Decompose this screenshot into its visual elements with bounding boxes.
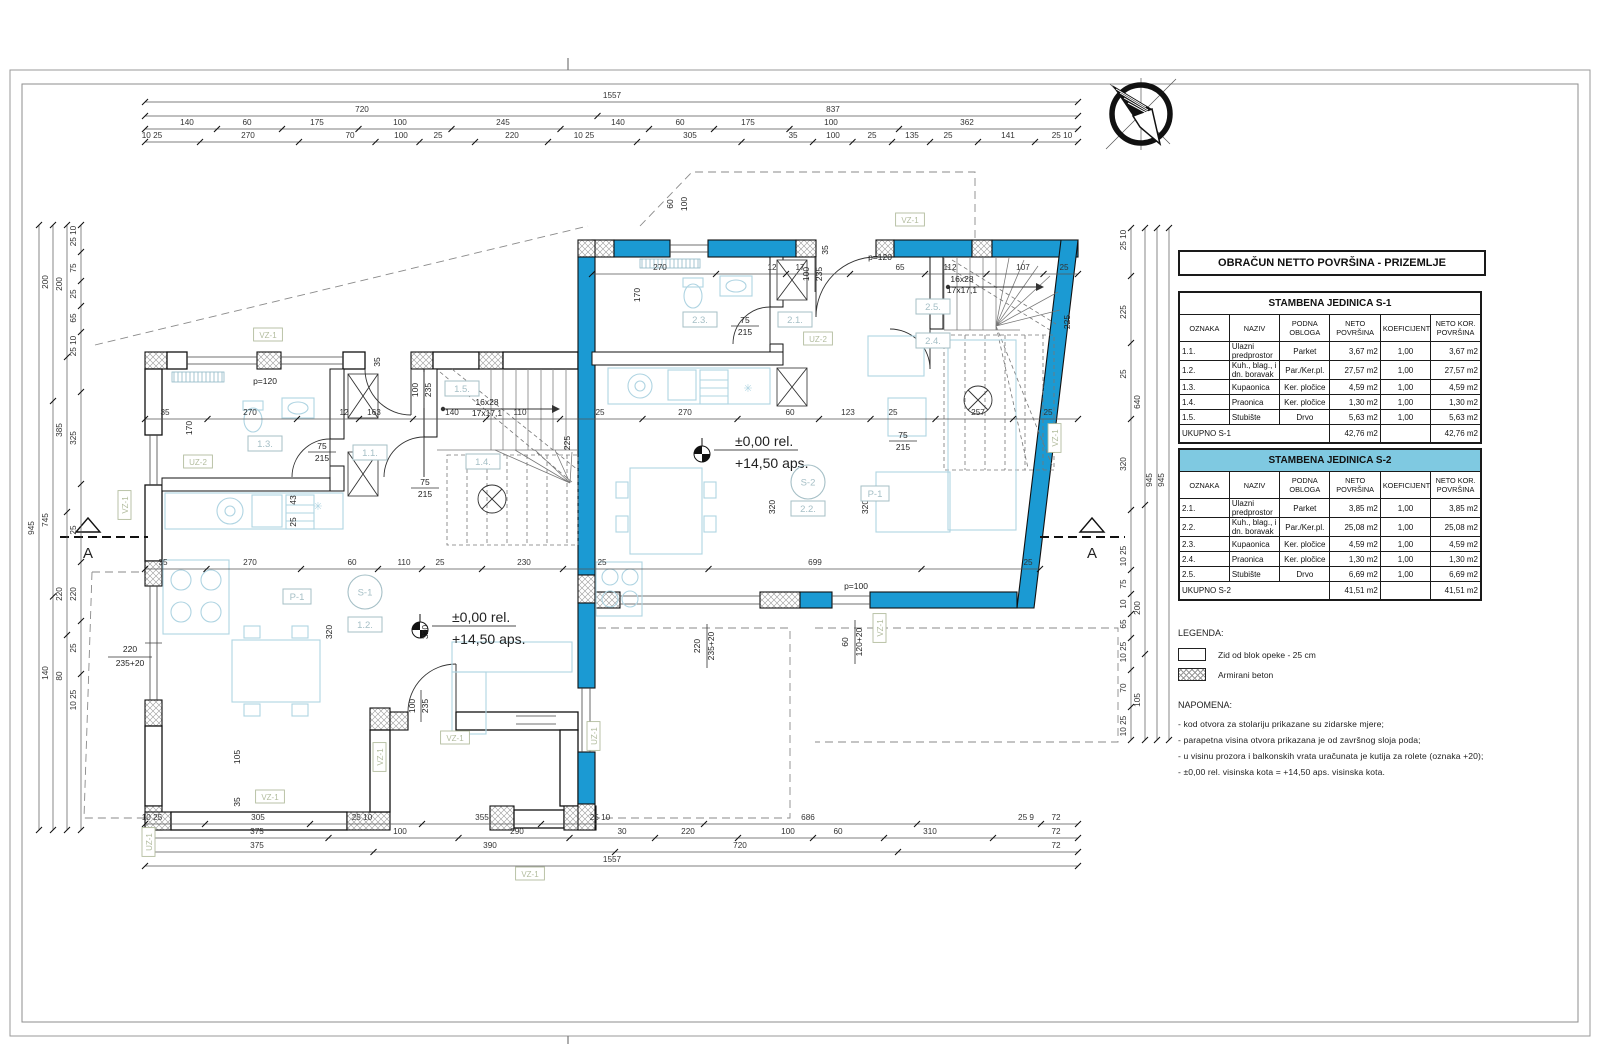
dim-label: 25 10: [69, 225, 78, 246]
room-label: P-1: [283, 589, 311, 604]
svg-text:1.5.: 1.5.: [454, 384, 470, 395]
dim-label: 270: [243, 558, 257, 567]
plan-text: 220: [692, 639, 702, 653]
dim-label: 25: [943, 131, 953, 140]
dim-label: 72: [1051, 813, 1061, 822]
dim-label: 220: [681, 827, 695, 836]
dim-label: 72: [1051, 841, 1061, 850]
room-label: 1.3.: [248, 436, 282, 451]
table-row: 1.4.PraonicaKer. pločice1,30 m21,001,30 …: [1179, 395, 1481, 410]
table-cell: 1,00: [1380, 342, 1430, 361]
dim-label: 305: [251, 813, 265, 822]
table-cell: 1.1.: [1179, 342, 1229, 361]
plan-text: 75: [898, 430, 908, 440]
table-cell: 1.5.: [1179, 410, 1229, 425]
svg-text:1.2.: 1.2.: [357, 620, 373, 631]
dim-label: 30: [617, 827, 627, 836]
column-header: NETO KOR. POVRŠINA: [1431, 315, 1481, 342]
table-cell: Parket: [1280, 499, 1330, 518]
dim-label: 10 25: [1119, 545, 1128, 566]
table-title: STAMBENA JEDINICA S-2: [1179, 449, 1481, 472]
table-cell: 2.2.: [1179, 518, 1229, 537]
dim-label: 25: [433, 131, 443, 140]
table-cell: 2.1.: [1179, 499, 1229, 518]
dim-label: 686: [801, 813, 815, 822]
legend-item-label: Armirani beton: [1218, 670, 1273, 680]
table-cell: Stubište: [1229, 567, 1279, 582]
table-cell: 2.4.: [1179, 552, 1229, 567]
dim-label: 10 25: [1119, 715, 1128, 736]
table-cell: 2.3.: [1179, 537, 1229, 552]
dim-label: 175: [310, 118, 324, 127]
dim-label: 140: [180, 118, 194, 127]
dim-label: 35: [158, 558, 168, 567]
notes: NAPOMENA: - kod otvora za stolariju prik…: [1178, 700, 1500, 783]
dim-label: 10 25: [142, 813, 163, 822]
plan-text: 100: [410, 383, 420, 397]
svg-text:S-1: S-1: [358, 588, 373, 599]
dim-label: 305: [683, 131, 697, 140]
dim-label: 135: [905, 131, 919, 140]
plan-text: 17x17,1: [947, 285, 978, 295]
table-row: 2.5.StubišteDrvo6,69 m21,006,69 m2: [1179, 567, 1481, 582]
svg-text:1.4.: 1.4.: [475, 457, 491, 468]
dim-label: 25: [867, 131, 877, 140]
dim-label: 325: [69, 431, 78, 445]
table-cell: Drvo: [1280, 567, 1330, 582]
table-cell: 1.4.: [1179, 395, 1229, 410]
note-line: - u visinu prozora i balkonskih vrata ur…: [1178, 751, 1500, 761]
plan-text: ±0,00 rel.: [735, 433, 793, 449]
svg-text:VZ-1: VZ-1: [376, 748, 385, 766]
column-header: NETO POVRŠINA: [1330, 472, 1380, 499]
table-cell: 3,67 m2: [1431, 342, 1481, 361]
room-label: 1.4.: [466, 454, 500, 469]
table-cell: 42,76 m2: [1431, 425, 1481, 443]
plan-text: 16x28: [475, 397, 498, 407]
column-header: PODNA OBLOGA: [1280, 472, 1330, 499]
dim-label: 140: [41, 666, 50, 680]
table-cell: Kuh., blag., i dn. boravak: [1229, 518, 1279, 537]
plan-text: A: [1087, 545, 1097, 562]
table-cell: 6,69 m2: [1431, 567, 1481, 582]
svg-text:VZ-1: VZ-1: [876, 619, 885, 637]
dim-label: 270: [678, 408, 692, 417]
svg-text:VZ-1: VZ-1: [446, 734, 464, 743]
dim-label: 25: [69, 289, 78, 299]
table-cell: 25,08 m2: [1431, 518, 1481, 537]
table-cell: 4,59 m2: [1431, 380, 1481, 395]
table-row: 2.1.Ulazni predprostorParket3,85 m21,003…: [1179, 499, 1481, 518]
dim-label: 60: [833, 827, 843, 836]
room-label: 2.2.: [791, 501, 825, 516]
plan-text: 170: [632, 288, 642, 302]
dim-label: 270: [241, 131, 255, 140]
plan-text: +14,50 aps.: [452, 631, 526, 647]
plan-text: p=120: [868, 252, 892, 262]
table-cell: Ulazni predprostor: [1229, 499, 1279, 518]
tag-label: VZ-1: [873, 614, 886, 643]
plan-text: 215: [315, 453, 329, 463]
dim-label: 257: [971, 408, 985, 417]
table-cell: 41,51 m2: [1431, 582, 1481, 600]
unit-label: S-1: [348, 575, 382, 609]
dim-label: 100: [824, 118, 838, 127]
table-cell: Ker. pločice: [1280, 395, 1330, 410]
plan-text: 43: [288, 495, 298, 505]
table-cell: 3,85 m2: [1431, 499, 1481, 518]
dim-label: 80: [55, 671, 64, 681]
svg-text:VZ-1: VZ-1: [261, 793, 279, 802]
dim-label: 10 25: [574, 131, 595, 140]
room-label: 1.5.: [445, 381, 479, 396]
plan-text: 75: [317, 441, 327, 451]
table-cell: 1,00: [1380, 410, 1430, 425]
plan-text: 235+20: [706, 631, 716, 660]
room-label: 2.4.: [916, 333, 950, 348]
table-cell: Ulazni predprostor: [1229, 342, 1279, 361]
dim-label: 65: [895, 263, 905, 272]
plan-text: 320: [420, 625, 430, 639]
plan-text: 35: [232, 797, 242, 807]
dim-label: 65: [69, 313, 78, 323]
plan-text: ✳: [743, 383, 752, 395]
dim-label: 10 25: [1119, 641, 1128, 662]
plan-text: 75: [420, 477, 430, 487]
dim-label: 270: [653, 263, 667, 272]
plan-text: 170: [184, 421, 194, 435]
dim-label: 290: [510, 827, 524, 836]
dim-label: 25: [69, 525, 78, 535]
plan-text: ±0,00 rel.: [452, 609, 510, 625]
svg-text:VZ-1: VZ-1: [901, 216, 919, 225]
dim-label: 163: [367, 408, 381, 417]
dim-label: 220: [55, 587, 64, 601]
svg-text:UZ-1: UZ-1: [590, 727, 599, 745]
plan-text: 235: [814, 267, 824, 281]
table-cell: 25,08 m2: [1330, 518, 1380, 537]
plan-text: 320: [324, 625, 334, 639]
dim-label: 25 10: [1119, 229, 1128, 250]
column-header: OZNAKA: [1179, 315, 1229, 342]
note-line: - ±0,00 rel. visinska kota = +14,50 aps.…: [1178, 767, 1500, 777]
table-row: 2.4.PraonicaKer. pločice1,30 m21,001,30 …: [1179, 552, 1481, 567]
table-cell: Ker. pločice: [1280, 537, 1330, 552]
svg-text:VZ-1: VZ-1: [259, 331, 277, 340]
plan-text: 225: [562, 436, 572, 450]
plan-text: 320: [860, 500, 870, 514]
tag-label: VZ-1: [441, 731, 470, 744]
dim-label: 25: [597, 558, 607, 567]
dim-label: 1557: [603, 91, 622, 100]
notes-title: NAPOMENA:: [1178, 700, 1500, 710]
tag-label: VZ-1: [373, 743, 386, 772]
s2-walls: [578, 240, 1078, 830]
dim-label: 60: [785, 408, 795, 417]
dim-label: 100: [826, 131, 840, 140]
table-cell: Stubište: [1229, 410, 1279, 425]
svg-text:VZ-1: VZ-1: [121, 496, 130, 514]
door-swings: [292, 257, 930, 712]
dim-label: 140: [445, 408, 459, 417]
dim-label: 100: [781, 827, 795, 836]
dim-label: 720: [733, 841, 747, 850]
table-cell: 1,30 m2: [1330, 552, 1380, 567]
table-cell: 4,59 m2: [1330, 380, 1380, 395]
plan-text: p=100: [844, 581, 868, 591]
table-cell: 1,00: [1380, 395, 1430, 410]
table-cell: 5,63 m2: [1431, 410, 1481, 425]
dim-label: 72: [1051, 827, 1061, 836]
table-cell: 41,51 m2: [1330, 582, 1380, 600]
dim-label: 375: [250, 827, 264, 836]
room-label: 2.3.: [683, 312, 717, 327]
svg-text:2.5.: 2.5.: [925, 302, 941, 313]
room-label: P-1: [861, 486, 889, 501]
dim-label: 745: [41, 513, 50, 527]
svg-text:1.1.: 1.1.: [362, 448, 378, 459]
dim-label: 25: [1119, 369, 1128, 379]
dim-label: 112: [943, 263, 956, 272]
svg-text:2.4.: 2.4.: [925, 336, 941, 347]
dim-label: 25: [69, 643, 78, 653]
table-cell: Kuh., blag., i dn. boravak: [1229, 361, 1279, 380]
dim-label: 220: [505, 131, 519, 140]
legend-item-label: Zid od blok opeke - 25 cm: [1218, 650, 1316, 660]
dim-label: 390: [483, 841, 497, 850]
tag-label: UZ-1: [587, 722, 600, 751]
table-cell: Par./Ker.pl.: [1280, 361, 1330, 380]
svg-text:VZ-1: VZ-1: [1051, 429, 1060, 447]
column-header: OZNAKA: [1179, 472, 1229, 499]
dim-label: 100: [394, 131, 408, 140]
table-row: 2.3.KupaonicaKer. pločice4,59 m21,004,59…: [1179, 537, 1481, 552]
dim-label: 375: [250, 841, 264, 850]
dim-label: 945: [1145, 473, 1154, 487]
dim-label: 837: [826, 105, 840, 114]
dim-label: 12: [767, 263, 777, 272]
plan-text: 75: [740, 315, 750, 325]
plan-text: 235: [420, 699, 430, 713]
table-cell: Kupaonica: [1229, 537, 1279, 552]
column-header: KOEFICIJENT: [1380, 472, 1430, 499]
dim-label: 200: [41, 275, 50, 289]
radiator-s1: [172, 372, 224, 382]
table-cell: Parket: [1280, 342, 1330, 361]
dim-label: 945: [27, 521, 36, 535]
table-cell: Par./Ker.pl.: [1280, 518, 1330, 537]
note-line: - kod otvora za stolariju prikazane su z…: [1178, 719, 1500, 729]
plan-text: 225: [1062, 315, 1072, 329]
radiator-s2: [640, 259, 700, 268]
plan-text: 60: [665, 199, 675, 209]
tag-label: UZ-1: [142, 828, 155, 857]
table-cell: 5,63 m2: [1330, 410, 1380, 425]
dim-label: 25 10: [1052, 131, 1073, 140]
drawing-sheet: 1557720837140601751002451406017510036210…: [0, 0, 1600, 1044]
concrete-swatch: [1178, 668, 1206, 681]
dim-label: 25: [435, 558, 445, 567]
svg-text:UZ-2: UZ-2: [809, 335, 827, 344]
table-cell: 1,30 m2: [1431, 552, 1481, 567]
table-cell: 27,57 m2: [1431, 361, 1481, 380]
plan-text: 235: [423, 383, 433, 397]
legend-item: Zid od blok opeke - 25 cm: [1178, 648, 1482, 661]
column-header: KOEFICIJENT: [1380, 315, 1430, 342]
dim-label: 70: [1119, 683, 1128, 693]
table-row: 2.2.Kuh., blag., i dn. boravakPar./Ker.p…: [1179, 518, 1481, 537]
tag-label: VZ-1: [516, 867, 545, 880]
table-title: STAMBENA JEDINICA S-1: [1179, 292, 1481, 315]
tag-label: UZ-2: [804, 332, 833, 345]
legend-item: Armirani beton: [1178, 668, 1482, 681]
svg-text:2.3.: 2.3.: [692, 315, 708, 326]
plan-text: 120+20: [854, 627, 864, 656]
tag-label: UZ-2: [184, 455, 213, 468]
table-cell: 1,00: [1380, 499, 1430, 518]
dim-label: 12: [339, 408, 349, 417]
dim-label: 699: [808, 558, 822, 567]
dim-label: 385: [55, 423, 64, 437]
brick-wall-swatch: [1178, 648, 1206, 661]
table-cell: 27,57 m2: [1330, 361, 1380, 380]
plan-text: 35: [372, 357, 382, 367]
dim-label: 945: [1157, 473, 1166, 487]
dim-label: 60: [675, 118, 685, 127]
room-label: 2.5.: [916, 299, 950, 314]
column-header: NETO POVRŠINA: [1330, 315, 1380, 342]
plan-text: 215: [738, 327, 752, 337]
terrace-outlines: [84, 172, 1118, 818]
dim-label: 230: [517, 558, 531, 567]
table-cell: 1,30 m2: [1431, 395, 1481, 410]
table-cell: UKUPNO S-1: [1179, 425, 1330, 443]
plan-text: 35: [820, 245, 830, 255]
dim-label: 25: [888, 408, 898, 417]
north-arrow-icon: [1106, 78, 1176, 150]
dim-label: 25: [1023, 558, 1033, 567]
table-cell: 1.2.: [1179, 361, 1229, 380]
plan-text: 105: [232, 750, 242, 764]
dim-label: 640: [1133, 395, 1142, 409]
table-row: 1.5.StubišteDrvo5,63 m21,005,63 m2: [1179, 410, 1481, 425]
dim-label: 141: [1001, 131, 1015, 140]
section-marker-right: [1040, 518, 1125, 537]
dim-label: 270: [243, 408, 257, 417]
dim-label: 355: [475, 813, 489, 822]
plan-text: 235+20: [116, 658, 145, 668]
dim-label: 10: [1119, 599, 1128, 609]
dim-label: 200: [1133, 601, 1142, 615]
dim-label: 105: [1133, 693, 1142, 707]
dim-label: 107: [1016, 263, 1030, 272]
tag-label: VZ-1: [256, 790, 285, 803]
plan-text: p=120: [253, 376, 277, 386]
dim-label: 10 25: [69, 689, 78, 710]
table-cell: Ker. pločice: [1280, 380, 1330, 395]
dim-label: 245: [496, 118, 510, 127]
room-label: 1.1.: [353, 445, 387, 460]
plan-text: 100: [407, 699, 417, 713]
svg-text:UZ-2: UZ-2: [189, 458, 207, 467]
table-cell: Praonica: [1229, 552, 1279, 567]
dim-label: 25 10: [590, 813, 611, 822]
dim-label: 720: [355, 105, 369, 114]
dim-label: 362: [960, 118, 974, 127]
dim-label: 75: [69, 263, 78, 273]
column-header: NETO KOR. POVRŠINA: [1431, 472, 1481, 499]
dim-label: 25: [1043, 408, 1053, 417]
dim-label: 100: [393, 827, 407, 836]
plan-text: 100: [679, 197, 689, 211]
dim-label: 70: [345, 131, 355, 140]
table-row: 1.3.KupaonicaKer. pločice4,59 m21,004,59…: [1179, 380, 1481, 395]
table-cell: Praonica: [1229, 395, 1279, 410]
plan-text: 60: [840, 637, 850, 647]
svg-text:S-2: S-2: [801, 478, 816, 489]
room-label: 2.1.: [778, 312, 812, 327]
table-row: 1.2.Kuh., blag., i dn. boravakPar./Ker.p…: [1179, 361, 1481, 380]
dim-label: 35: [160, 408, 170, 417]
dim-label: 25 10: [352, 813, 373, 822]
dim-label: 200: [55, 277, 64, 291]
plan-text: 17x17,1: [472, 408, 503, 418]
dim-label: 140: [611, 118, 625, 127]
dim-label: 60: [347, 558, 357, 567]
svg-text:1.3.: 1.3.: [257, 439, 273, 450]
table-cell: 1,00: [1380, 380, 1430, 395]
table-s1: STAMBENA JEDINICA S-1OZNAKANAZIVPODNA OB…: [1178, 291, 1482, 444]
dim-label: 75: [1119, 579, 1128, 589]
dim-label: 35: [788, 131, 798, 140]
table-cell: 1.3.: [1179, 380, 1229, 395]
svg-text:UZ-1: UZ-1: [145, 833, 154, 851]
dim-label: 310: [923, 827, 937, 836]
dim-label: 100: [393, 118, 407, 127]
table-cell: 42,76 m2: [1330, 425, 1380, 443]
plan-text: 100: [801, 267, 811, 281]
tag-label: VZ-1: [896, 213, 925, 226]
dim-label: 175: [741, 118, 755, 127]
room-label: 1.2.: [348, 617, 382, 632]
panel-title: OBRAČUN NETTO POVRŠINA - PRIZEMLJE: [1178, 250, 1486, 276]
table-cell: 1,00: [1380, 552, 1430, 567]
dim-label: 25: [595, 408, 605, 417]
legend: LEGENDA: Zid od blok opeke - 25 cm Armir…: [1178, 628, 1482, 688]
svg-text:VZ-1: VZ-1: [521, 870, 539, 879]
dim-label: 123: [841, 408, 855, 417]
table-cell: 6,69 m2: [1330, 567, 1380, 582]
dim-label: 320: [1119, 457, 1128, 471]
dim-label: 225: [1119, 305, 1128, 319]
table-cell: 3,67 m2: [1330, 342, 1380, 361]
table-cell: 4,59 m2: [1431, 537, 1481, 552]
table-cell: 1,00: [1380, 518, 1430, 537]
dim-label: 110: [397, 558, 410, 567]
tag-label: VZ-1: [118, 491, 131, 520]
table-cell: 1,00: [1380, 567, 1430, 582]
dim-label: 25 9: [1018, 813, 1034, 822]
plan-text: ✳: [313, 501, 322, 513]
table-cell: 1,00: [1380, 361, 1430, 380]
legend-title: LEGENDA:: [1178, 628, 1482, 638]
dim-label: 60: [242, 118, 252, 127]
plan-text: 320: [767, 500, 777, 514]
table-cell: 3,85 m2: [1330, 499, 1380, 518]
svg-text:2.2.: 2.2.: [800, 504, 816, 515]
table-cell: Drvo: [1280, 410, 1330, 425]
dim-label: 110: [513, 408, 526, 417]
